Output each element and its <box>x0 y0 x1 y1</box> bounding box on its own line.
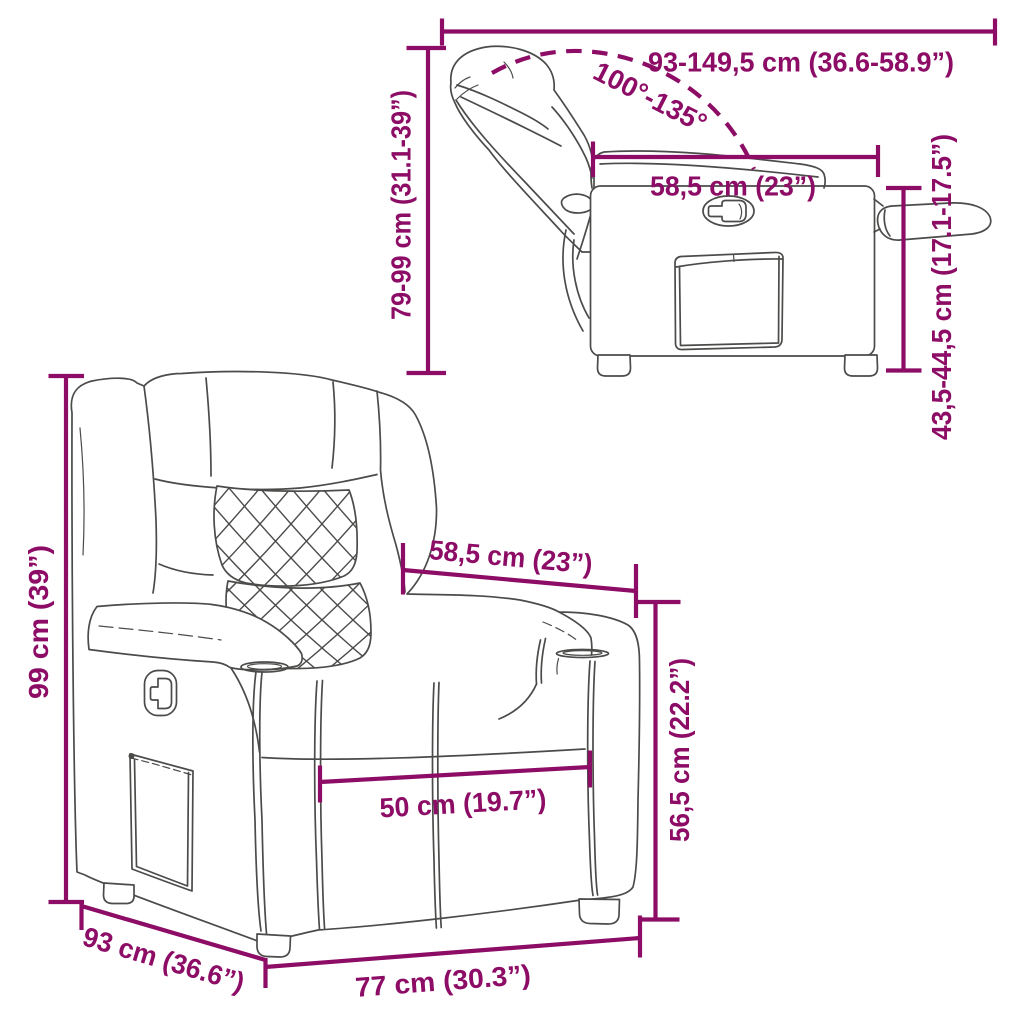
svg-text:93-149,5 cm (36.6-58.9”): 93-149,5 cm (36.6-58.9”) <box>648 47 954 78</box>
svg-text:79-99 cm (31.1-39”): 79-99 cm (31.1-39”) <box>386 90 417 320</box>
svg-text:58,5 cm (23”): 58,5 cm (23”) <box>650 171 816 202</box>
svg-text:99 cm (39”): 99 cm (39”) <box>23 545 54 699</box>
svg-text:43,5-44,5 cm (17.1-17.5”): 43,5-44,5 cm (17.1-17.5”) <box>926 134 957 440</box>
svg-text:56,5 cm (22.2”): 56,5 cm (22.2”) <box>664 658 695 842</box>
